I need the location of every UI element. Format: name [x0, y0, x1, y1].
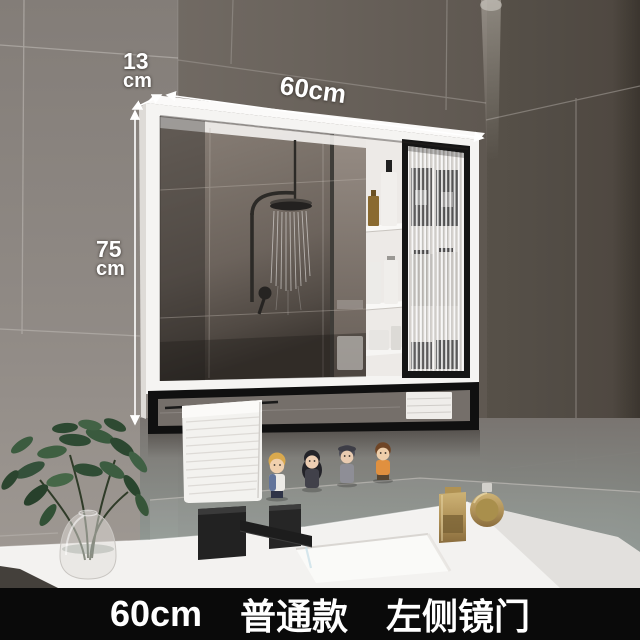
dimension-depth-label: 13 cm: [123, 51, 152, 91]
open-shelf-section: [366, 138, 404, 376]
height-unit: cm: [96, 260, 125, 278]
towel-reflection: [337, 336, 363, 370]
fluted-glass-door: [402, 139, 470, 378]
caption-variant: 普通款: [240, 588, 348, 640]
product-image: 13 cm 60cm 75 cm 60cm 普通款 左侧镜门: [0, 0, 640, 640]
caption-bar: 60cm 普通款 左侧镜门: [0, 588, 640, 640]
depth-value: 13: [123, 51, 152, 72]
caption-size: 60cm: [110, 593, 202, 635]
handheld-shower: [259, 287, 272, 300]
caption-door-side: 左侧镜门: [386, 588, 530, 640]
square-gold-bottle: [439, 487, 466, 543]
depth-unit: cm: [123, 72, 152, 90]
height-value: 75: [96, 239, 125, 260]
dimension-height-label: 75 cm: [96, 239, 125, 279]
folded-towels: [406, 392, 452, 419]
